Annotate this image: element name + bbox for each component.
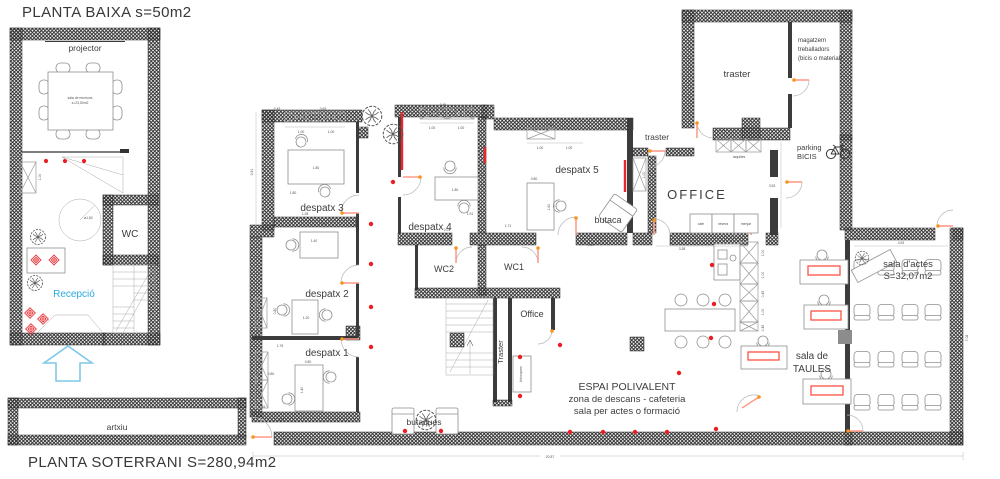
plant-icon — [362, 106, 382, 126]
dim: 2.50 — [588, 243, 595, 247]
label-espai-1: ESPAI POLIVALENT — [578, 381, 676, 393]
label-taquilles: taquilles — [733, 155, 746, 159]
room-label-wc2: WC2 — [434, 264, 454, 274]
reception-desk — [27, 248, 65, 273]
dim: 0.65 — [320, 107, 327, 111]
dim: 1.40 — [311, 239, 318, 243]
label-cafe: cafe — [698, 222, 705, 226]
room-label-wc: WC — [122, 229, 139, 240]
storage-cabinet — [20, 162, 36, 193]
label-fotocopies: fotocopies — [519, 366, 523, 382]
room-label-traster-small: traster — [645, 132, 669, 142]
dim: 0.80 — [273, 308, 277, 315]
dim: 1.00 — [642, 172, 646, 179]
dim: 1.76 — [277, 344, 284, 348]
dim: 0.80 — [531, 177, 538, 181]
plant-icon — [28, 276, 43, 291]
dim: 0.45 — [761, 291, 765, 298]
dim: 1.00 — [429, 126, 436, 130]
dim: 0.70 — [321, 222, 328, 226]
meeting-table-note-1: sala de reunions — [68, 96, 93, 100]
room-label-butaca: butaca — [594, 215, 621, 225]
room-label-traster-ne: traster — [724, 69, 751, 80]
room-label-sala-actes-1: sala d'actes — [883, 259, 933, 270]
dim: 1.00 — [458, 126, 465, 130]
dim: 1.20 — [303, 316, 310, 320]
dim: 0.45 — [259, 405, 266, 409]
room-label-projector: projector — [68, 43, 101, 53]
room-label-artxiu: artxiu — [107, 422, 128, 432]
dim: 1.00 — [537, 146, 544, 150]
dim: 1.84 — [278, 418, 285, 422]
dim: 1.60 — [547, 204, 551, 211]
room-label-magatzem-2: treballadors — [798, 47, 829, 53]
dim: 3.53 — [769, 184, 776, 188]
dim: 1.00 — [761, 250, 765, 257]
title-planta-soterrani: PLANTA SOTERRANI S=280,94m2 — [28, 454, 277, 471]
dim-total-width: 20.87 — [546, 455, 555, 459]
sink-counter — [714, 244, 740, 280]
plant-icon — [31, 230, 46, 245]
auditorium-chairs — [854, 260, 941, 411]
room-label-sala-actes-2: S=32,07m2 — [884, 271, 933, 282]
room-label-magatzem-1: magatzem — [798, 38, 826, 44]
dim: 7.08 — [965, 335, 969, 342]
dim: 0.45 — [547, 123, 554, 127]
dim-gf-circle: ø1,50 — [84, 216, 93, 220]
dim: 3.38 — [679, 247, 686, 251]
floor-plan-page: PLANTA BAIXA s=50m2 PLANTA SOTERRANI S=2… — [0, 0, 1000, 479]
dim: 1.00 — [761, 309, 765, 316]
dim-d3-height: 3.91 — [250, 169, 254, 176]
label-parking-2: BICIS — [797, 152, 817, 161]
room-label-despatx1: despatx 1 — [305, 348, 349, 359]
dim: 1.00 — [566, 146, 573, 150]
label-espai-2: zona de descans - cafeteria — [569, 394, 686, 405]
dim: 1.80 — [452, 188, 459, 192]
dim: 1.00 — [761, 272, 765, 279]
dim: 4.53 — [898, 241, 905, 245]
dim: 0.45 — [274, 107, 281, 111]
room-label-office-small: Office — [520, 309, 543, 319]
dim: 1.80 — [290, 191, 297, 195]
room-label-sala-taules-2: TAULES — [793, 364, 831, 375]
label-parking-1: parking — [797, 143, 822, 152]
room-label-office-main: OFFICE — [667, 187, 727, 202]
room-label-butaques: butaques — [407, 417, 442, 427]
dim: 1.80 — [313, 166, 320, 170]
floor-plan-drawing: PLANTA BAIXA s=50m2 PLANTA SOTERRANI S=2… — [0, 0, 1000, 479]
label-nevera: nevera — [718, 222, 728, 226]
dim: 0.45 — [761, 325, 765, 332]
room-label-traster-shaft: Traster — [496, 340, 505, 364]
label-menjar: menjar — [741, 222, 752, 226]
room-label-recepcio: Recepció — [53, 289, 95, 300]
dim: 1.71 — [505, 224, 512, 228]
meeting-table-note-2: s=23,50m2 — [72, 101, 89, 105]
long-table — [665, 309, 735, 331]
ground-floor-plan: projector sala de reunions s=23,50m2 1.0… — [10, 28, 160, 381]
meeting-table: sala de reunions s=23,50m2 — [39, 63, 122, 139]
dim: 1.00 — [328, 130, 335, 134]
label-espai-3: sala per actes o formació — [574, 406, 680, 417]
room-label-wc1: WC1 — [504, 262, 524, 272]
dim: 1.00 — [298, 130, 305, 134]
dim: 1.40 — [300, 387, 304, 394]
ramp — [62, 157, 123, 193]
taules-tables — [741, 250, 851, 404]
dim: 1.28 — [302, 212, 309, 216]
dim-gf-box: 1.00 — [38, 174, 42, 181]
room-label-despatx5: despatx 5 — [555, 165, 599, 176]
dim: 0.80 — [268, 372, 275, 376]
room-label-magatzem-3: (bicis o material) — [798, 56, 842, 62]
dim: 1.91 — [467, 212, 474, 216]
room-label-despatx2: despatx 2 — [305, 289, 349, 300]
dim: 0.80 — [305, 360, 312, 364]
dim: 2.01 — [444, 228, 451, 232]
room-label-sala-taules-1: sala de — [796, 351, 829, 362]
entrance-arrow-icon — [44, 346, 92, 381]
title-planta-baixa: PLANTA BAIXA s=50m2 — [22, 4, 192, 21]
dim: 0.45 — [256, 330, 263, 334]
dim: 0.45 — [440, 103, 447, 107]
